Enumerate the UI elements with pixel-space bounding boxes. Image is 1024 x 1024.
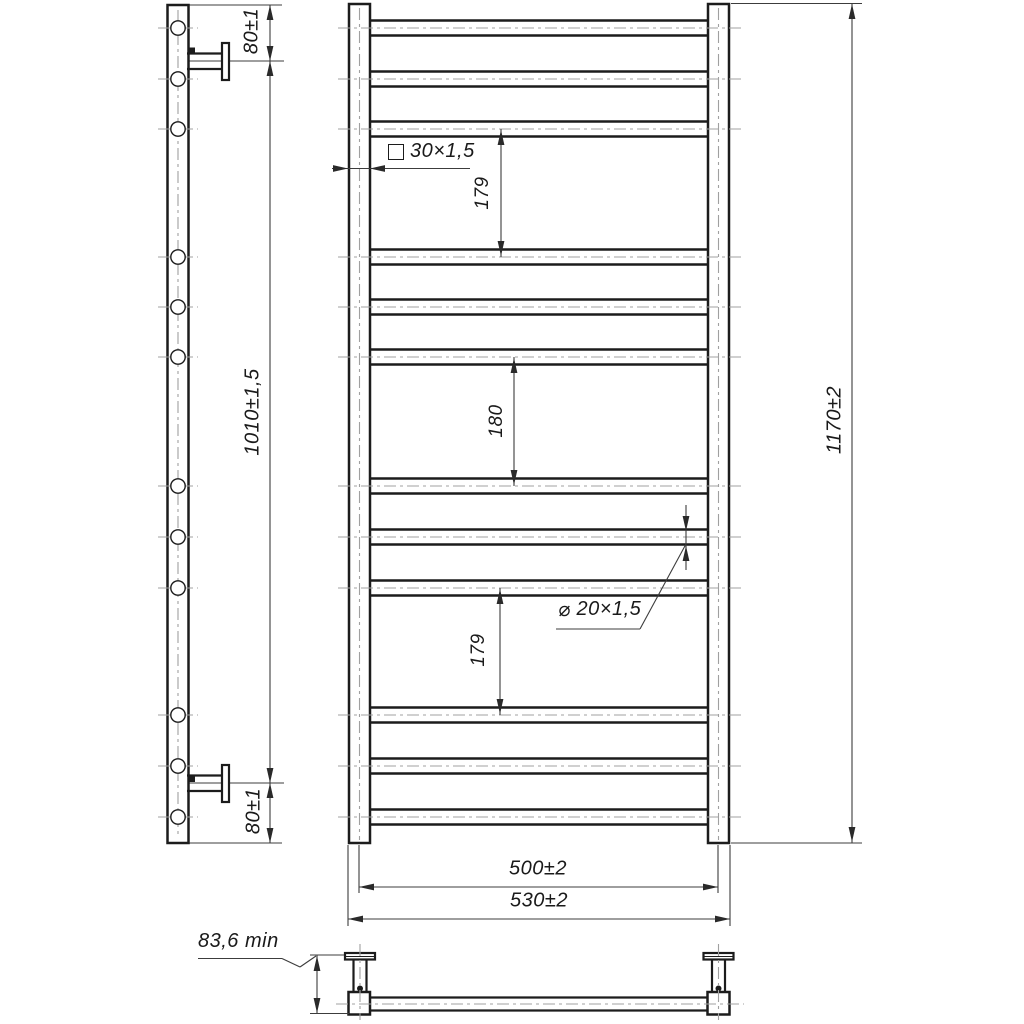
callout-post-profile: 30×1,5 — [388, 140, 475, 163]
dim-gap-top: 179 — [472, 176, 494, 209]
leader-line — [282, 959, 300, 968]
rung-end-circle — [171, 581, 185, 595]
dimension-arrow — [267, 5, 274, 20]
left-post-section — [349, 992, 371, 1015]
callout-post-profile-text: 30×1,5 — [410, 140, 475, 163]
rung-end-circle — [171, 479, 185, 493]
rung-end-circle — [171, 759, 185, 773]
dimension-arrow — [715, 916, 730, 923]
dim-overall-height: 1170±2 — [824, 386, 847, 454]
dimension-arrow — [267, 46, 274, 61]
dimension-arrow — [849, 827, 856, 842]
rung-end-circle — [171, 250, 185, 264]
rung-end-circle — [171, 350, 185, 364]
dimension-arrow — [314, 956, 321, 971]
dimension-arrow — [348, 916, 363, 923]
rung-end-circle — [171, 300, 185, 314]
bracket-weld — [188, 48, 195, 55]
dimension-arrow — [703, 884, 718, 891]
dim-side-bottom-offset: 80±1 — [243, 788, 266, 834]
side-view — [158, 5, 284, 843]
rung-end-circle — [171, 122, 185, 136]
square-profile-symbol — [388, 144, 404, 160]
leader-line — [640, 544, 686, 629]
dimension-arrow — [359, 884, 374, 891]
dim-wall-clearance: 83,6 min — [198, 930, 279, 953]
dimension-arrow — [333, 165, 348, 172]
rung-end-circle — [171, 530, 185, 544]
leader-line — [300, 956, 316, 967]
bracket-flange — [222, 765, 229, 802]
callout-rung-profile-text: 20×1,5 — [577, 598, 642, 621]
dimension-arrow — [370, 165, 385, 172]
rung-end-circle — [171, 708, 185, 722]
bracket-flange — [222, 43, 229, 80]
bracket-weld — [188, 776, 195, 783]
rung-end-circle — [171, 21, 185, 35]
dim-gap-middle: 180 — [486, 404, 508, 437]
diameter-symbol: ⌀ — [558, 597, 571, 621]
dimension-arrow — [314, 998, 321, 1013]
drawing-sheet: 80±1 1010±1,5 80±1 179 180 179 1170±2 50… — [0, 0, 1024, 1024]
dimension-arrow — [267, 828, 274, 843]
dimension-arrow — [267, 768, 274, 783]
dim-mounting-width: 500±2 — [509, 858, 567, 881]
rung-end-circle — [171, 72, 185, 86]
rung-end-circle — [171, 810, 185, 824]
dim-gap-bottom: 179 — [468, 633, 490, 666]
dim-overall-width: 530±2 — [510, 890, 568, 913]
dim-side-bracket-span: 1010±1,5 — [242, 368, 265, 455]
dimension-arrow — [267, 61, 274, 76]
dimension-arrow — [849, 4, 856, 19]
callout-rung-profile: ⌀ 20×1,5 — [558, 597, 641, 621]
top-view — [198, 944, 744, 1020]
dimension-arrow — [267, 783, 274, 798]
dim-side-top-offset: 80±1 — [241, 8, 264, 54]
